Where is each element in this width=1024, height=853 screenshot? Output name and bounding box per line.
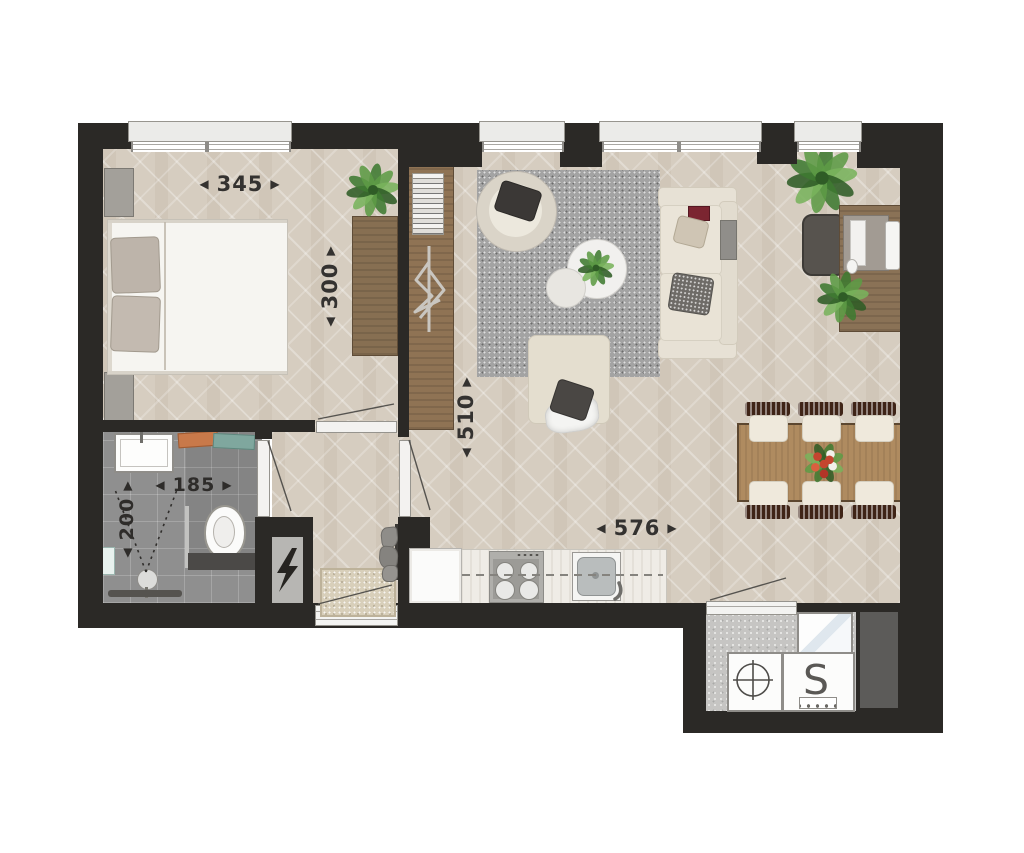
arrow-right-icon: ▶ xyxy=(121,480,133,490)
stove-knobs xyxy=(516,553,540,557)
wall-bathroom xyxy=(255,517,272,603)
window xyxy=(599,121,762,142)
stove xyxy=(489,551,544,603)
dining-chair-back xyxy=(798,505,843,519)
dimension-bathroom-depth: ◀ 200 ▶ xyxy=(116,476,138,562)
shower-bar xyxy=(108,590,182,597)
bathroom-door xyxy=(257,440,270,517)
wall-left xyxy=(78,123,103,628)
sofa xyxy=(658,187,737,357)
dining-chair-cushion xyxy=(749,481,788,508)
dining-chair-back xyxy=(745,402,790,416)
wall xyxy=(287,123,398,149)
dining-chair-cushion xyxy=(855,415,894,442)
desk-plant xyxy=(815,270,871,324)
meter-closet-floor xyxy=(272,537,303,603)
dimension-bedroom-depth: ◀ 300 ▶ xyxy=(319,243,341,329)
shaft xyxy=(860,612,898,708)
sofa-tray xyxy=(720,220,737,260)
plant xyxy=(344,162,402,218)
dimension-value: 300 xyxy=(318,263,342,310)
arrow-left-icon: ◀ xyxy=(460,447,472,457)
flower-bouquet xyxy=(797,436,851,490)
dimension-value: 345 xyxy=(217,172,264,196)
arrow-left-icon: ◀ xyxy=(199,178,209,190)
dimension-living-depth: ◀ 510 ▶ xyxy=(455,374,477,460)
window-frame xyxy=(482,142,564,152)
arrow-right-icon: ▶ xyxy=(667,522,677,534)
nightstand xyxy=(104,168,134,217)
dimension-bathroom-width: ◀ 185 ▶ xyxy=(151,474,237,496)
table-plant xyxy=(577,249,615,287)
dimension-living-width: ◀ 576 ▶ xyxy=(594,517,680,539)
bed-crease xyxy=(164,222,166,370)
window-mullion xyxy=(205,142,209,152)
boiler xyxy=(797,612,853,657)
soap-shelf xyxy=(102,547,115,575)
arrow-left-icon: ◀ xyxy=(155,479,165,491)
window-frame xyxy=(797,142,861,152)
sideboard xyxy=(407,166,454,430)
arrow-right-icon: ▶ xyxy=(324,245,336,255)
dimension-value: 200 xyxy=(116,498,138,541)
arrow-left-icon: ◀ xyxy=(121,547,133,557)
wall-pier xyxy=(560,123,602,167)
toilet xyxy=(204,505,246,559)
bathroom-sink xyxy=(114,433,174,473)
bed-pillow xyxy=(110,295,161,353)
bedroom-door xyxy=(316,421,397,433)
dining-chair-back xyxy=(851,402,896,416)
window xyxy=(128,121,292,142)
wardrobe xyxy=(352,216,398,356)
arrow-right-icon: ▶ xyxy=(270,178,280,190)
dimension-bedroom-width: ◀ 345 ▶ xyxy=(197,173,283,195)
toilet-ledge xyxy=(188,553,263,570)
sofa-pillow xyxy=(667,272,714,316)
wall-meter-closet xyxy=(303,537,313,603)
kitchen-sink xyxy=(572,552,621,601)
nightstand xyxy=(104,372,134,421)
burner xyxy=(520,562,538,580)
window xyxy=(794,121,862,142)
dining-chair-back xyxy=(745,505,790,519)
arrow-left-icon: ◀ xyxy=(596,522,606,534)
fridge xyxy=(409,548,462,604)
ventilation-unit xyxy=(727,652,783,712)
towel xyxy=(213,433,256,450)
dining-chair-cushion xyxy=(855,481,894,508)
sink-faucet xyxy=(140,431,143,443)
arrow-left-icon: ◀ xyxy=(324,316,336,326)
dining-chair-cushion xyxy=(749,415,788,442)
window-frame xyxy=(602,142,761,152)
washer-panel xyxy=(799,697,837,709)
toilet-bowl xyxy=(213,516,235,548)
living-room-door xyxy=(399,440,411,517)
dining-chair-back xyxy=(851,505,896,519)
sink-drain xyxy=(592,572,599,579)
wall-kitchen xyxy=(398,517,430,548)
burner xyxy=(495,580,515,600)
tech-room-door xyxy=(706,601,797,615)
wall-divider xyxy=(398,166,409,437)
keyboard xyxy=(885,221,900,270)
floor-plan: ◀ 345 ▶ ◀ 300 ▶ ◀ 510 ▶ ◀ 576 ▶ ◀ 185 ▶ … xyxy=(0,0,1024,853)
coat xyxy=(382,565,398,582)
dining-chair-back xyxy=(798,402,843,416)
burner xyxy=(496,562,514,580)
arrow-right-icon: ▶ xyxy=(460,376,472,386)
wall-bedroom-hall xyxy=(103,420,315,432)
arrow-right-icon: ▶ xyxy=(222,479,232,491)
dimension-value: 185 xyxy=(173,474,216,496)
burner xyxy=(519,580,539,600)
wall-kitchen xyxy=(398,548,409,603)
window xyxy=(479,121,565,142)
books xyxy=(412,173,444,235)
dimension-value: 510 xyxy=(454,394,478,441)
wall-bathroom xyxy=(255,432,272,439)
window-frame xyxy=(131,142,291,152)
dimension-value: 576 xyxy=(614,516,661,540)
wall-pier xyxy=(757,123,797,164)
wall-pier xyxy=(398,123,482,167)
window-mullion xyxy=(677,142,681,152)
bed-pillow xyxy=(110,236,161,294)
wall-meter-closet xyxy=(272,517,313,537)
